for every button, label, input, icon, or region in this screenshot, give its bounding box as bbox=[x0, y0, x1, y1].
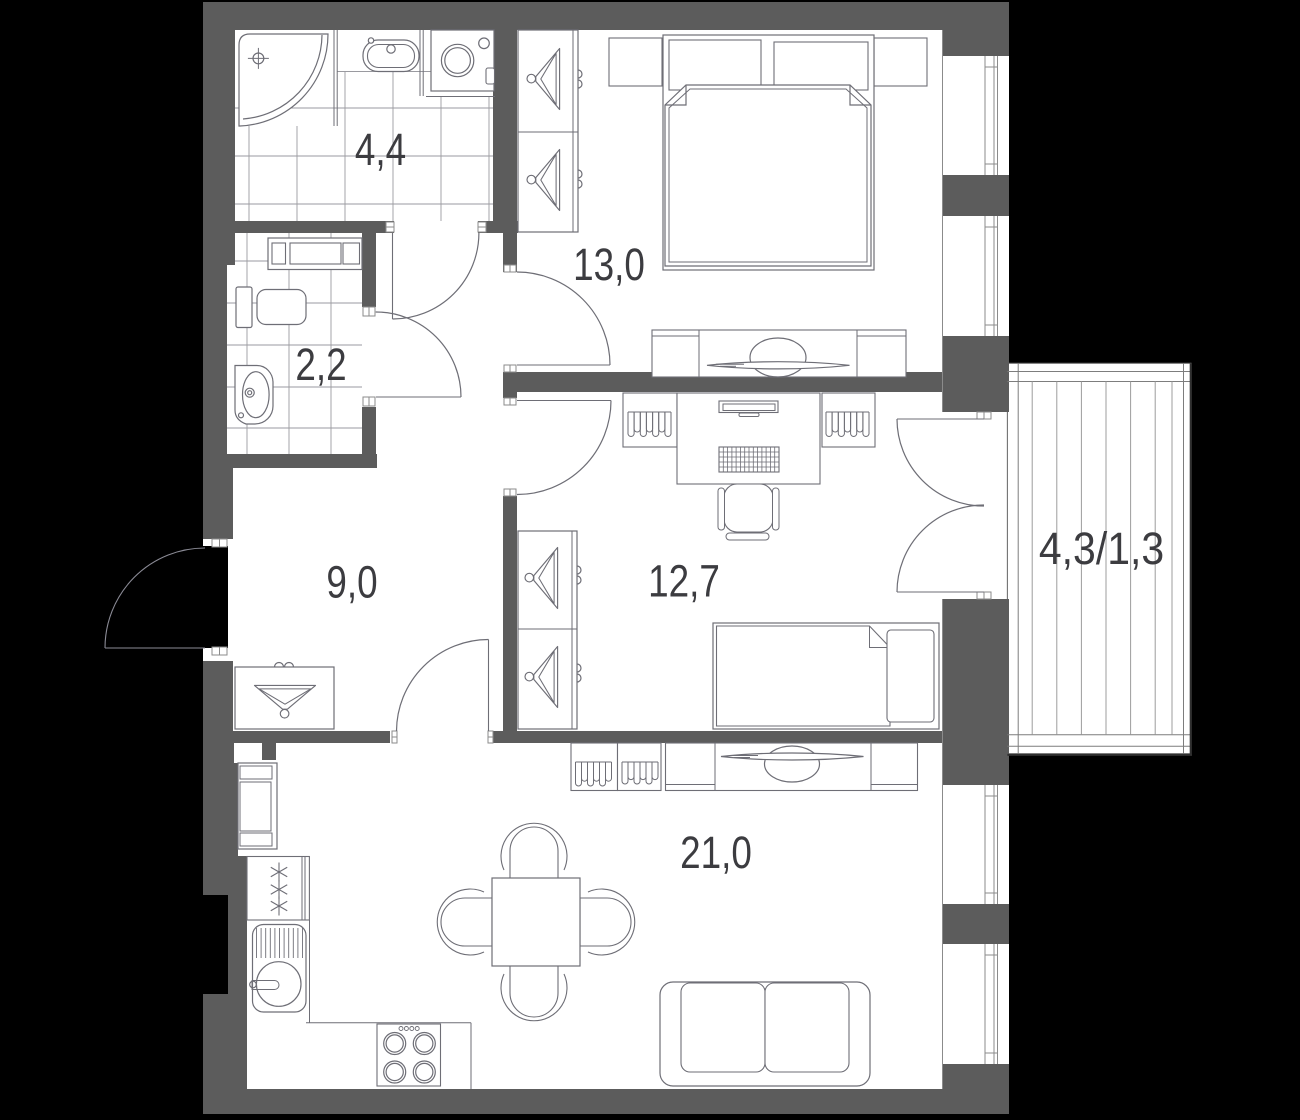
svg-text:9,0: 9,0 bbox=[326, 557, 377, 607]
svg-text:12,7: 12,7 bbox=[648, 556, 720, 606]
svg-text:13,0: 13,0 bbox=[573, 240, 645, 290]
svg-text:4,3/1,3: 4,3/1,3 bbox=[1039, 524, 1164, 574]
svg-text:4,4: 4,4 bbox=[355, 125, 406, 175]
svg-text:2,2: 2,2 bbox=[295, 340, 346, 390]
svg-text:21,0: 21,0 bbox=[680, 828, 752, 878]
